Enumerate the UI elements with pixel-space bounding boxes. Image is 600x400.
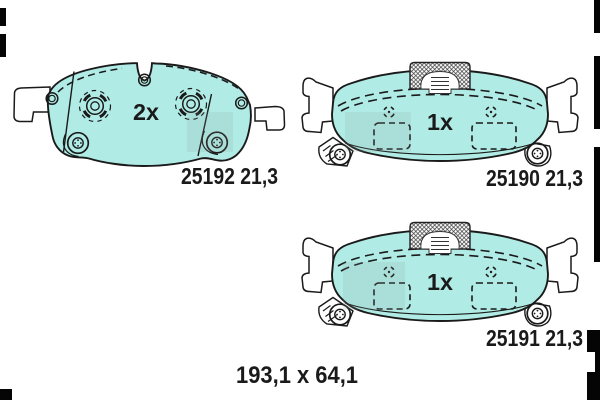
pad-right-ear [255,107,285,131]
dimensions-label: 193,1 x 64,1 [236,362,358,389]
pad-top-left: 2x [14,63,285,166]
quantity-label: 2x [133,99,159,125]
part-number-label: 25192 21,3 [181,163,278,189]
quantity-label: 1x [427,109,453,135]
brake-pad-diagram: 2x 1x 1x 25192 21,3 25190 21,3 25191 21,… [0,0,600,400]
film-edge-notch [587,352,595,372]
film-edge-mark [0,34,6,57]
film-edge-mark [594,0,600,33]
diagram-canvas: 2x 1x 1x 25192 21,3 25190 21,3 25191 21,… [0,0,600,400]
watermark [187,112,411,310]
film-edge-mark [0,389,12,400]
quantity-label: 1x [427,269,453,295]
film-edge-mark [0,8,6,26]
pad-left-ear [14,87,50,122]
film-edge-mark [594,147,600,262]
pad-top-right: 1x [302,63,578,167]
part-number-label: 25191 21,3 [486,325,583,351]
part-number-label: 25190 21,3 [486,165,583,191]
film-edge-mark [594,56,600,129]
